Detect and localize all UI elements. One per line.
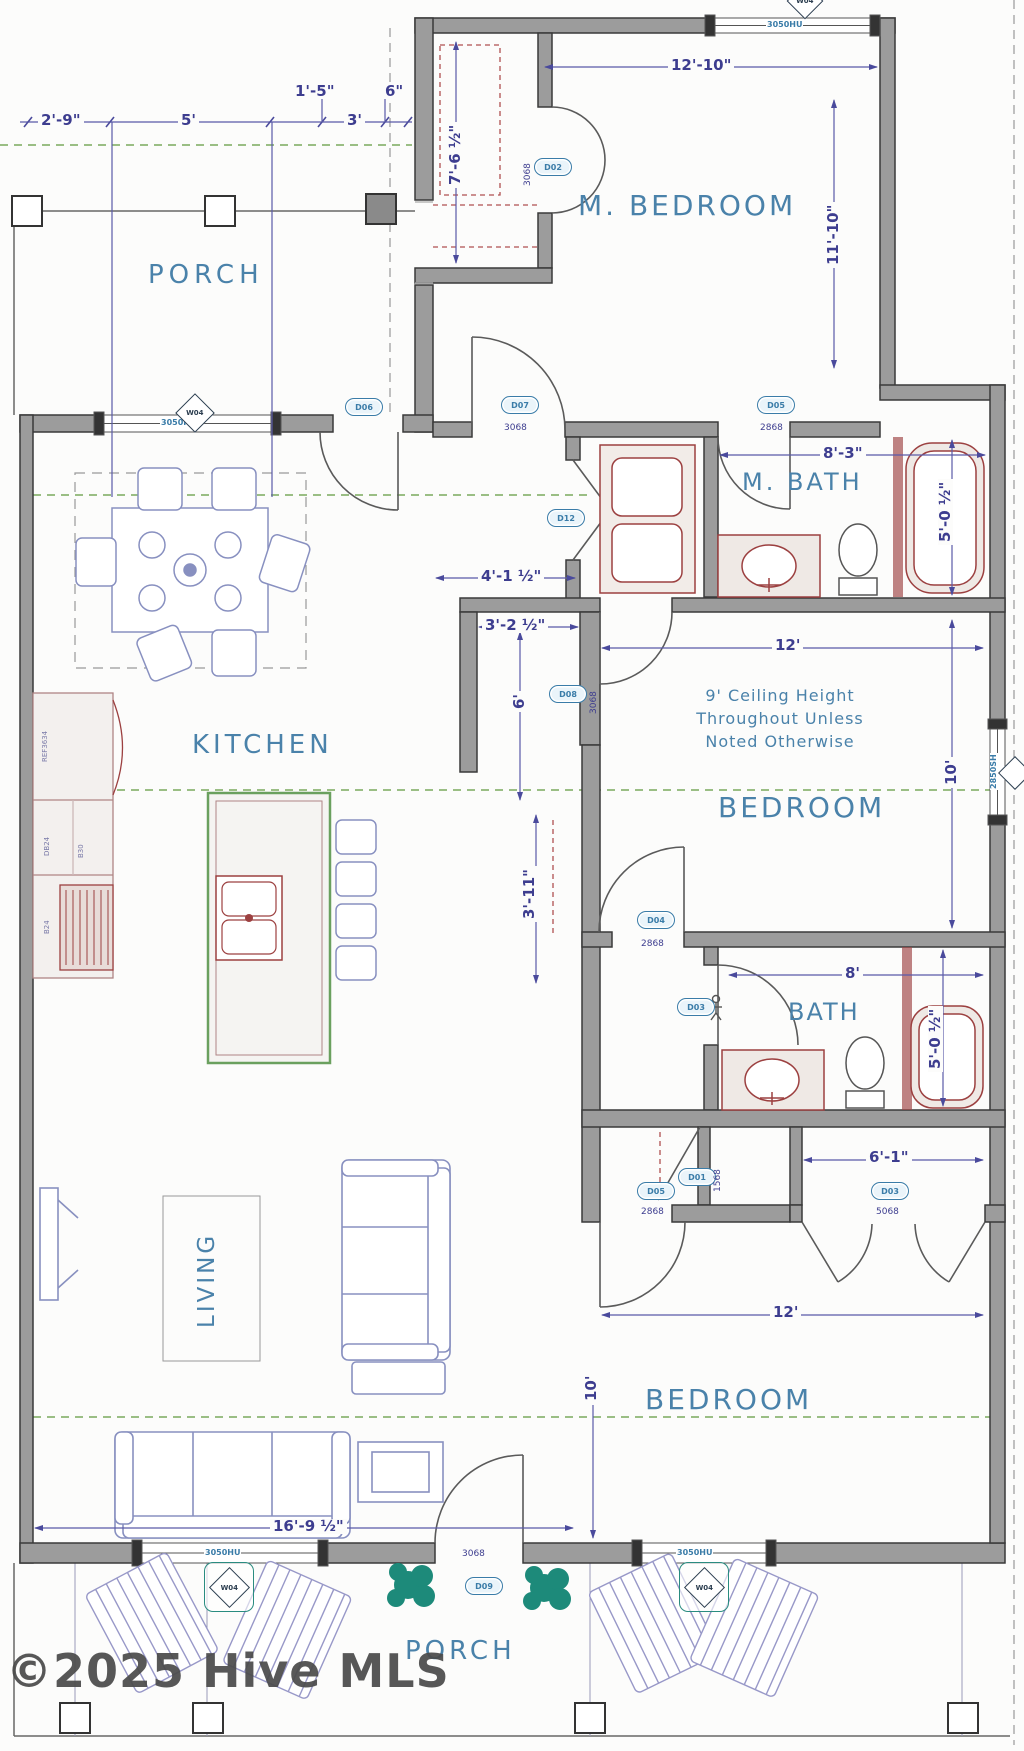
door-tag-mbr-closet: D02 (534, 158, 572, 176)
door-size-hall-bed: 3068 (590, 691, 599, 714)
room-label-kitchen: KITCHEN (192, 732, 333, 758)
cabinet-label-3: B30 (78, 844, 85, 858)
ceiling-note-line2: Throughout Unless (658, 707, 902, 730)
dim-hall-length-2: 3'-11" (522, 866, 537, 922)
window-tag-text: W04 (220, 1583, 237, 1591)
cabinet-label-1: REF3634 (42, 731, 49, 762)
door-tag-mbr: D07 (501, 396, 539, 414)
window-size-mbr: 3050HU (766, 21, 803, 29)
watermark: ©2025 Hive MLS (6, 1648, 450, 1694)
window-diamond-living: W04 (204, 1562, 254, 1612)
door-tag-linen: D01 (678, 1168, 716, 1186)
dim-living-width: 16'-9 ½" (270, 1519, 347, 1534)
room-label-living: LIVING (196, 1233, 219, 1328)
cabinet-label-2: DB24 (44, 837, 51, 856)
window-size-bed-bot: 3050HU (676, 1549, 713, 1557)
dim-mbath-height: 5'-0 ½" (938, 479, 953, 545)
door-tag-entry: D06 (345, 398, 383, 416)
room-label-m-bedroom: M. BEDROOM (578, 192, 796, 220)
dim-bedroom-mid-width: 12' (772, 638, 803, 653)
door-tag-porch: D09 (465, 1577, 503, 1595)
door-tag-bath: D03 (677, 998, 715, 1016)
door-size-mbr: 3068 (504, 424, 527, 433)
window-diamond-kitchen: W04 (174, 392, 216, 434)
door-size-linen: 1568 (714, 1169, 723, 1192)
window-size-living: 3050HU (204, 1549, 241, 1557)
dim-hall-width: 3'-2 ½" (482, 618, 548, 633)
dim-bath-height: 5'-0 ½" (928, 1006, 943, 1072)
room-label-m-bath: M. BATH (742, 470, 863, 494)
dim-closet-width: 6'-1" (866, 1150, 912, 1165)
dim-mbr-closet: 7'-6 ½" (448, 122, 463, 188)
floor-plan: PORCH M. BEDROOM M. BATH KITCHEN BEDROOM… (0, 0, 1024, 1751)
window-diamond-bed-bot: W04 (679, 1562, 729, 1612)
door-tag-bed-bot: D05 (637, 1182, 675, 1200)
dim-porch-4: 3' (344, 113, 365, 128)
window-diamond-bed-mid (1000, 758, 1024, 788)
door-size-mbr-closet: 3068 (524, 163, 533, 186)
ceiling-note-line1: 9' Ceiling Height (658, 684, 902, 707)
dim-mbath-width: 8'-3" (820, 446, 866, 461)
room-label-bedroom-bottom: BEDROOM (645, 1386, 812, 1414)
plumbing-wall (893, 437, 903, 597)
door-size-porch: 3068 (462, 1550, 485, 1559)
window-size-bed-mid: 2850SH (990, 753, 998, 790)
dim-foyer-width: 4'-1 ½" (478, 569, 544, 584)
dim-hall-length: 6' (512, 691, 527, 712)
living-furniture (40, 1160, 450, 1538)
kitchen-island (208, 793, 376, 1063)
ceiling-note: 9' Ceiling Height Throughout Unless Note… (658, 684, 902, 754)
door-tag-bed-mid: D04 (637, 911, 675, 929)
room-label-bedroom-mid: BEDROOM (718, 794, 885, 822)
dim-porch-1: 2'-9" (38, 113, 84, 128)
dining-set (75, 468, 311, 683)
ceiling-note-line3: Noted Otherwise (658, 730, 902, 753)
door-tag-bot-closet: D03 (871, 1182, 909, 1200)
dim-porch-5: 6" (382, 84, 406, 99)
dim-bedroom-mid-height: 10' (944, 757, 959, 788)
door-tag-hall-bed: D08 (549, 685, 587, 703)
cabinet-label-4: B24 (44, 920, 51, 934)
window-tag-text: W04 (186, 409, 203, 417)
dim-bedroom-bottom-height: 10' (584, 1373, 599, 1404)
dim-mbr-height: 11'-10" (826, 202, 841, 268)
door-size-mbath: 2868 (760, 424, 783, 433)
door-size-bed-mid: 2868 (641, 940, 664, 949)
window-diamond-mbr: W04 (788, 0, 822, 18)
dim-bedroom-bottom-width: 12' (770, 1305, 801, 1320)
door-size-bed-bot: 2868 (641, 1208, 664, 1217)
door-tag-mbath: D05 (757, 396, 795, 414)
dim-porch-2: 5' (178, 113, 199, 128)
room-label-bath: BATH (788, 1000, 860, 1024)
room-label-porch-top: PORCH (148, 262, 264, 288)
window-tag-text: W04 (695, 1583, 712, 1591)
dim-mbr-width: 12'-10" (668, 58, 734, 73)
laundry-appliance (600, 445, 695, 593)
dim-bath-width: 8' (842, 966, 863, 981)
door-tag-laundry: D12 (547, 509, 585, 527)
door-size-bot-closet: 5068 (876, 1208, 899, 1217)
dim-porch-3: 1'-5" (292, 84, 338, 99)
window-tag-text: W04 (796, 0, 813, 5)
